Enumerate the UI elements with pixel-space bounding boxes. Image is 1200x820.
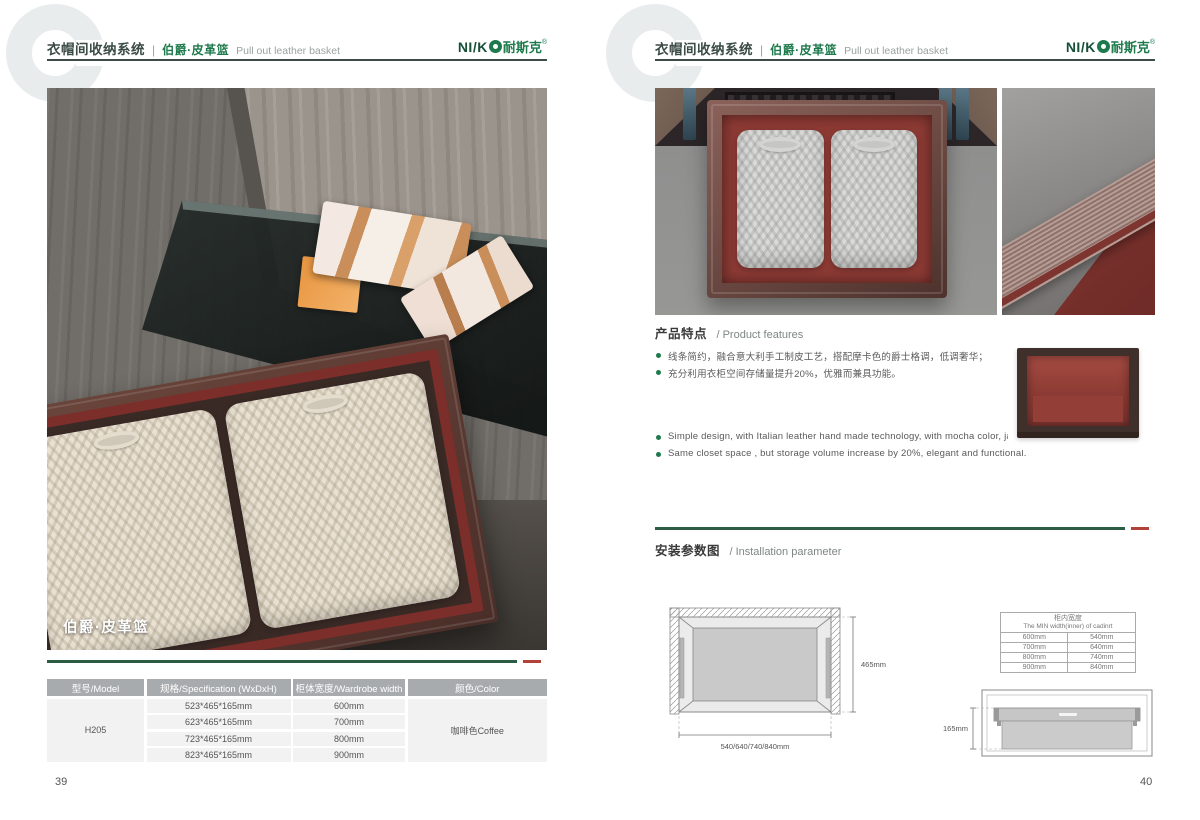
slide-post — [956, 88, 969, 140]
feature-text: 线条简约，融合意大利手工制皮工艺，搭配摩卡色的爵士格调，低调奢华； — [668, 349, 988, 363]
features-bullets-zh: 线条简约，融合意大利手工制皮工艺，搭配摩卡色的爵士格调，低调奢华； 充分利用衣柜… — [655, 349, 988, 383]
basket-interior — [693, 628, 817, 701]
leather-basket — [707, 100, 947, 298]
features-title-en: / Product features — [716, 329, 803, 341]
table-cell-width: 900mm — [293, 748, 405, 762]
sweater-collar — [301, 391, 349, 416]
table-cell: 600mm — [1001, 633, 1068, 643]
brand-o-icon — [489, 40, 502, 53]
thumbnail-frame — [1017, 348, 1139, 438]
table-cell: 640mm — [1068, 643, 1136, 653]
dim-depth-label: 465mm — [861, 660, 886, 669]
cabinet-right-wall — [831, 608, 840, 714]
divider-red-bar — [1131, 527, 1149, 530]
feature-text: Simple design, with Italian leather hand… — [668, 431, 1054, 442]
system-title: 衣帽间收纳系统 — [655, 38, 753, 58]
table-cell: 740mm — [1068, 653, 1136, 663]
product-name-zh: 伯爵·皮革篮 — [770, 41, 837, 58]
wardrobe-photo: 伯爵·皮革篮 — [47, 88, 547, 650]
sweater-collar — [92, 428, 140, 453]
header-separator: | — [760, 43, 763, 57]
photo-caption: 伯爵·皮革篮 — [63, 616, 149, 637]
header-rule — [47, 59, 547, 61]
side-view-diagram: 165mm — [940, 686, 1160, 764]
section-divider — [47, 660, 547, 663]
page-header: 衣帽间收纳系统 | 伯爵·皮革篮 Pull out leather basket — [47, 38, 340, 58]
table-cell: 700mm — [1001, 643, 1068, 653]
basket-corner-detail-photo — [1002, 88, 1155, 315]
installation-title-en: / Installation parameter — [729, 546, 841, 558]
folded-sweaters — [732, 125, 922, 273]
sweater — [831, 130, 918, 268]
dim-height-label: 165mm — [943, 724, 968, 733]
table-header-color: 颜色/Color — [408, 679, 548, 696]
brand-registered-mark: ® — [1150, 39, 1155, 46]
features-bullets-en: Simple design, with Italian leather hand… — [655, 431, 1054, 465]
brand-o-icon — [1097, 40, 1110, 53]
table-cell-spec: 623*465*165mm — [147, 715, 291, 729]
divider-green-bar — [655, 527, 1125, 530]
feature-bullet: Same closet space , but storage volume i… — [655, 448, 1054, 465]
table-cell: 800mm — [1001, 653, 1068, 663]
dim-widths-label: 540/640/740/840mm — [721, 742, 790, 751]
brand-logo: NI/K 耐斯克 ® — [1066, 37, 1155, 56]
bullet-icon — [656, 435, 661, 440]
table-row: 柜内宽度 The MIN width(inner) of cadinrt — [1001, 613, 1136, 633]
slide-rail-right — [826, 638, 830, 698]
table-row: 700mm 640mm — [1001, 643, 1136, 653]
feature-text: 充分利用衣柜空间存储量提升20%，优雅而兼具功能。 — [668, 366, 901, 380]
page-number: 39 — [55, 776, 67, 788]
table-cell-width: 800mm — [293, 732, 405, 746]
table-header-spec: 规格/Specification (WxDxH) — [147, 679, 291, 696]
spec-table: 型号/Model 规格/Specification (WxDxH) 柜体宽度/W… — [47, 679, 547, 762]
divider-green-bar — [47, 660, 517, 663]
section-divider — [655, 527, 1155, 530]
table-cell: 540mm — [1068, 633, 1136, 643]
sweater-collar — [759, 137, 801, 152]
table-row: 900mm 840mm — [1001, 663, 1136, 673]
catalog-page-right: 衣帽间收纳系统 | 伯爵·皮革篮 Pull out leather basket… — [600, 0, 1200, 820]
feature-text: Same closet space , but storage volume i… — [668, 448, 1027, 459]
table-cell-model: H205 — [47, 699, 144, 763]
header-rule — [655, 59, 1155, 61]
bullet-icon — [656, 452, 661, 457]
table-cell-spec: 823*465*165mm — [147, 748, 291, 762]
rail-logo-strip — [1059, 713, 1077, 716]
top-view-diagram: 465mm 540/640/740/840mm — [658, 598, 898, 756]
rail-hook — [1133, 721, 1137, 726]
product-name-en: Pull out leather basket — [236, 45, 340, 57]
table-cell: 900mm — [1001, 663, 1068, 673]
cabinet-top-wall — [670, 608, 840, 617]
table-cell: 840mm — [1068, 663, 1136, 673]
feature-bullet: 充分利用衣柜空间存储量提升20%，优雅而兼具功能。 — [655, 366, 988, 383]
table-cell-spec: 723*465*165mm — [147, 732, 291, 746]
table-header-width: 柜体宽度/Wardrobe width — [293, 679, 405, 696]
product-name-en: Pull out leather basket — [844, 45, 948, 57]
table-header-model: 型号/Model — [47, 679, 144, 696]
min-width-table: 柜内宽度 The MIN width(inner) of cadinrt 600… — [1000, 612, 1136, 673]
page-number: 40 — [1140, 776, 1152, 788]
bullet-icon — [656, 370, 661, 375]
sweater — [737, 130, 824, 268]
slide-post — [683, 88, 696, 140]
table-row: 600mm 540mm — [1001, 633, 1136, 643]
basket-top-view-photo — [655, 88, 997, 315]
brand-zh: 耐斯克 — [503, 37, 542, 56]
basket-product-thumbnail — [1008, 336, 1148, 450]
features-title: 产品特点 / Product features — [655, 323, 803, 343]
product-name-zh: 伯爵·皮革篮 — [162, 41, 229, 58]
cabinet-left-wall — [670, 608, 679, 714]
brand-registered-mark: ® — [542, 39, 547, 46]
min-width-title-en: The MIN width(inner) of cadinrt — [1001, 623, 1135, 632]
table-cell-spec: 523*465*165mm — [147, 699, 291, 713]
min-width-title-zh: 柜内宽度 — [1001, 613, 1135, 623]
rail-hook — [997, 721, 1001, 726]
table-cell-color: 咖啡色Coffee — [408, 699, 548, 763]
sweater — [223, 371, 462, 631]
installation-title-zh: 安装参数图 — [655, 544, 720, 558]
rail-end-cap — [994, 708, 999, 721]
brand-latin: NI/K — [1066, 39, 1096, 55]
page-header: 衣帽间收纳系统 | 伯爵·皮革篮 Pull out leather basket — [655, 38, 948, 58]
basket-body — [1002, 721, 1132, 749]
bullet-icon — [656, 353, 661, 358]
sweater — [47, 408, 253, 650]
brand-latin: NI/K — [458, 39, 488, 55]
features-title-zh: 产品特点 — [655, 327, 707, 341]
table-header-cell: 柜内宽度 The MIN width(inner) of cadinrt — [1001, 613, 1136, 633]
table-cell-width: 700mm — [293, 715, 405, 729]
table-row: 800mm 740mm — [1001, 653, 1136, 663]
system-title: 衣帽间收纳系统 — [47, 38, 145, 58]
table-cell-width: 600mm — [293, 699, 405, 713]
header-separator: | — [152, 43, 155, 57]
sweater-collar — [853, 137, 895, 152]
rail-end-cap — [1135, 708, 1140, 721]
feature-bullet: Simple design, with Italian leather hand… — [655, 431, 1054, 448]
thumbnail-leather-floor — [1033, 396, 1123, 422]
feature-bullet: 线条简约，融合意大利手工制皮工艺，搭配摩卡色的爵士格调，低调奢华； — [655, 349, 988, 366]
slide-rail-left — [680, 638, 684, 698]
divider-red-bar — [523, 660, 541, 663]
installation-title: 安装参数图 / Installation parameter — [655, 540, 841, 560]
brand-zh: 耐斯克 — [1111, 37, 1150, 56]
brand-logo: NI/K 耐斯克 ® — [458, 37, 547, 56]
catalog-page-left: 衣帽间收纳系统 | 伯爵·皮革篮 Pull out leather basket… — [0, 0, 600, 820]
